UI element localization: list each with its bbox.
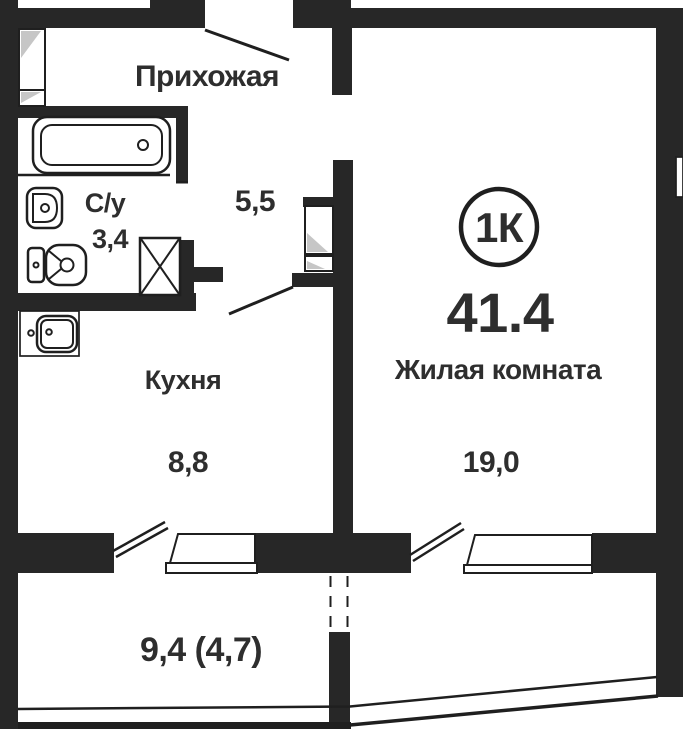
wall-balcony-band-c bbox=[592, 533, 658, 573]
wall-bathroom-right bbox=[176, 106, 188, 183]
toilet-icon bbox=[28, 245, 86, 285]
kitchen-door-swing bbox=[229, 287, 293, 314]
ventilation-shaft bbox=[140, 238, 180, 295]
apartment-badge: 1К bbox=[461, 189, 537, 265]
wall-left bbox=[0, 0, 18, 729]
wall-cap bbox=[176, 181, 188, 184]
toilet-tank bbox=[28, 248, 44, 282]
entrance-door-swing bbox=[205, 30, 289, 60]
total-area: 41.4 bbox=[447, 281, 554, 344]
bathroom-label: С/у bbox=[85, 188, 126, 218]
wall-right bbox=[656, 8, 683, 697]
kitchen-label: Кухня bbox=[145, 365, 221, 395]
living-area: 19,0 bbox=[463, 446, 519, 479]
floor-plan: 1К Прихожая 5,5 С/у 3,4 Кухня 8,8 Жилая … bbox=[0, 0, 683, 729]
living-window-sill bbox=[464, 565, 592, 573]
living-label: Жилая комната bbox=[394, 354, 602, 385]
entrance-jamb-left bbox=[150, 0, 205, 10]
balcony-outer-line-right bbox=[350, 696, 658, 725]
bathroom-area: 3,4 bbox=[92, 224, 129, 254]
hallway-label: Прихожая bbox=[135, 60, 279, 93]
living-window bbox=[467, 535, 592, 565]
wall-living-divider-top bbox=[332, 28, 352, 95]
kitchen-window-sill bbox=[166, 563, 257, 573]
kitchen-sink-icon bbox=[20, 311, 79, 356]
wall-living-divider bbox=[333, 160, 353, 535]
bathtub-icon bbox=[18, 117, 170, 175]
wall-kitchen-door-jamb bbox=[194, 267, 223, 282]
badge-label: 1К bbox=[475, 204, 524, 251]
kitchen-balcony-door-leaf2 bbox=[116, 528, 168, 557]
sink-icon bbox=[27, 188, 62, 228]
wall-balcony-band-b bbox=[255, 533, 411, 573]
living-balcony-door-leaf2 bbox=[413, 529, 464, 561]
kitchen-area: 8,8 bbox=[168, 446, 208, 479]
hallway-area: 5,5 bbox=[235, 185, 275, 218]
right-wall-window-notch bbox=[676, 157, 683, 197]
balcony-area: 9,4 (4,7) bbox=[140, 631, 262, 669]
wall-top-left bbox=[0, 8, 205, 28]
living-balcony-door-leaf bbox=[410, 523, 461, 555]
toilet-bowl bbox=[46, 245, 86, 285]
kitchen-balcony-door-leaf bbox=[113, 522, 165, 551]
balcony-outer-line-left bbox=[18, 722, 351, 729]
door-frame-bottom-stub bbox=[292, 273, 352, 287]
kitchen-window bbox=[170, 534, 255, 563]
entrance-jamb-right bbox=[293, 0, 351, 28]
wall-top-right bbox=[351, 8, 658, 28]
wall-balcony-divider bbox=[329, 632, 350, 727]
wall-balcony-band-a bbox=[18, 533, 114, 573]
